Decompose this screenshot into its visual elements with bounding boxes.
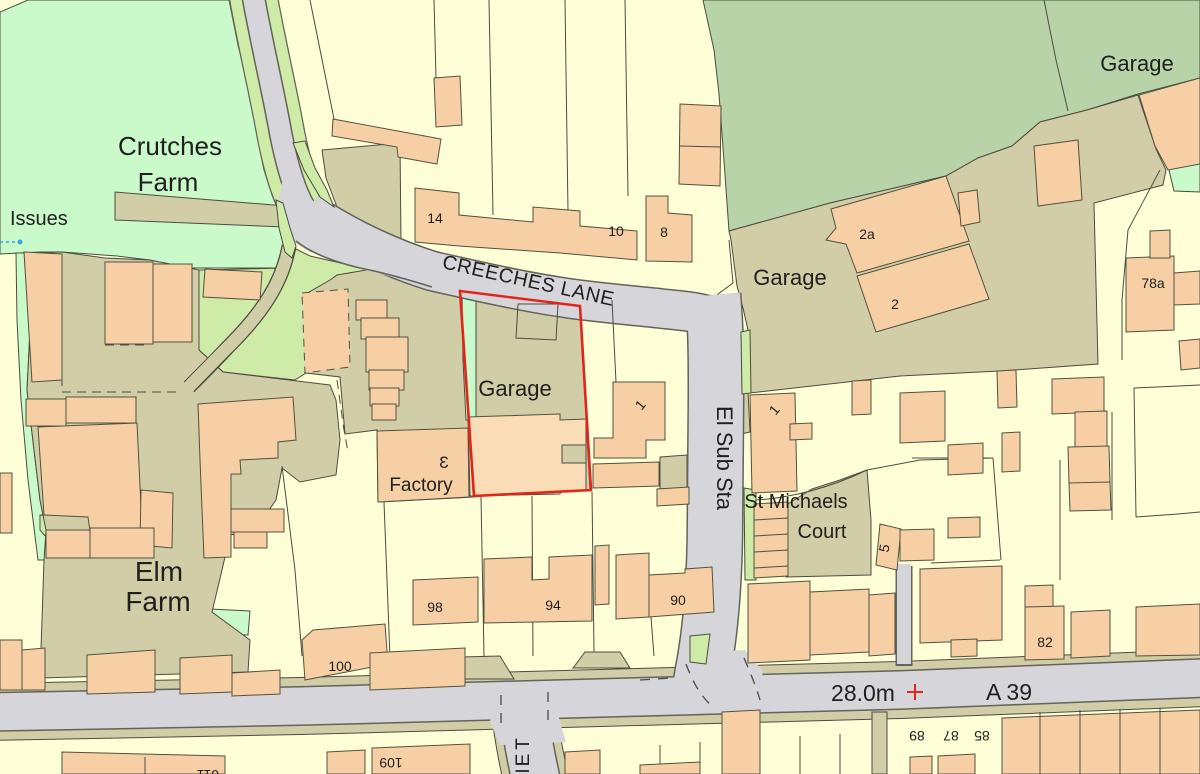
svg-text:78a: 78a	[1141, 275, 1165, 291]
svg-text:2a: 2a	[859, 226, 875, 242]
svg-text:E: E	[513, 754, 534, 767]
svg-text:Garage: Garage	[1100, 51, 1173, 76]
svg-text:85: 85	[974, 728, 990, 744]
svg-text:I: I	[513, 768, 534, 773]
svg-text:14: 14	[427, 210, 443, 226]
svg-text:10: 10	[608, 223, 624, 239]
svg-text:100: 100	[328, 658, 352, 674]
svg-text:8: 8	[660, 224, 668, 240]
svg-text:Garage: Garage	[753, 265, 826, 290]
svg-text:Crutches: Crutches	[118, 131, 222, 161]
svg-text:90: 90	[670, 592, 686, 608]
svg-text:Court: Court	[798, 521, 847, 543]
svg-text:2: 2	[891, 296, 899, 312]
svg-text:Factory: Factory	[389, 475, 453, 496]
svg-text:St Michaels: St Michaels	[744, 491, 847, 513]
svg-text:A 39: A 39	[986, 679, 1032, 705]
svg-text:109: 109	[379, 755, 403, 771]
svg-text:Farm: Farm	[138, 167, 199, 197]
svg-text:Garage: Garage	[478, 376, 551, 401]
svg-text:87: 87	[943, 728, 959, 744]
svg-text:T: T	[513, 738, 534, 750]
svg-text:94: 94	[545, 597, 561, 613]
svg-text:Issues: Issues	[10, 208, 68, 230]
svg-text:Farm: Farm	[125, 586, 190, 617]
svg-text:89: 89	[909, 728, 925, 744]
svg-text:82: 82	[1037, 634, 1053, 650]
svg-text:28.0m: 28.0m	[831, 680, 895, 706]
svg-text:3: 3	[439, 453, 448, 472]
svg-text:611: 611	[197, 767, 220, 774]
svg-text:98: 98	[427, 599, 443, 615]
svg-text:El Sub Sta: El Sub Sta	[712, 406, 737, 511]
svg-text:Elm: Elm	[135, 556, 183, 587]
